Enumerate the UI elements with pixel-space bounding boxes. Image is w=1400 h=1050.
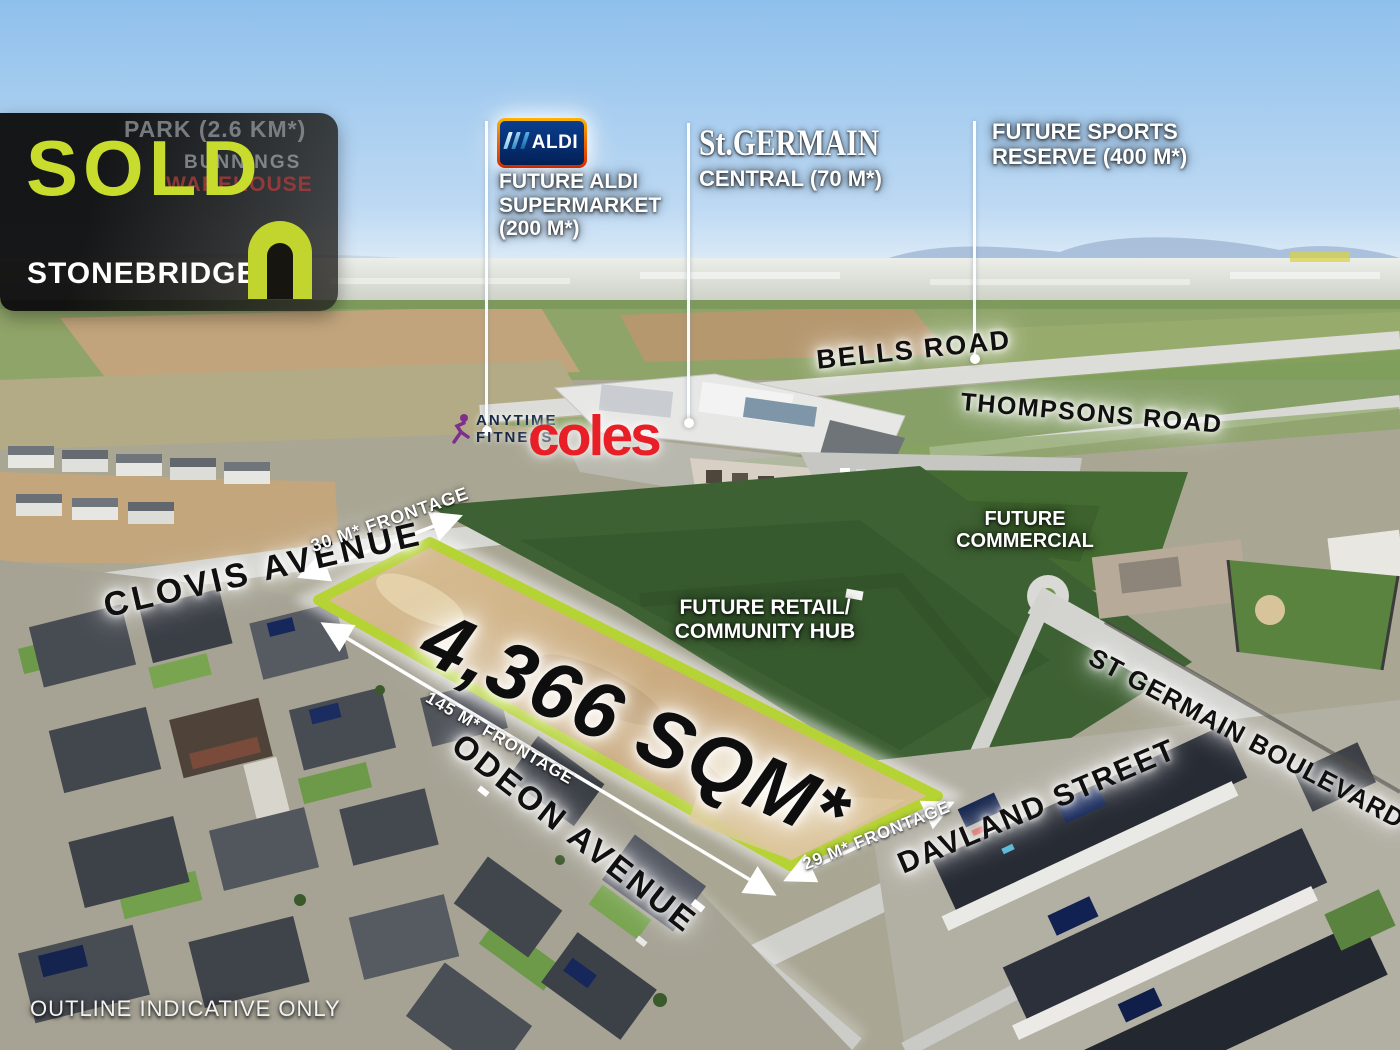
aldi-callout-line2: SUPERMARKET	[499, 194, 661, 218]
st-germain-leader-dot	[684, 418, 694, 428]
sports-reserve-callout: FUTURE SPORTS RESERVE (400 M*)	[992, 120, 1187, 169]
stonebridge-arch-icon	[248, 221, 312, 299]
aldi-logo: ALDI	[497, 118, 587, 168]
aldi-leader-line	[485, 121, 488, 429]
sold-badge: PARK (2.6 KM*) BUNNINGS WAREHOUSE SOLD S…	[0, 113, 338, 311]
future-retail-line2: COMMUNITY HUB	[645, 620, 885, 644]
aldi-callout-line3: (200 M*)	[499, 217, 661, 241]
future-retail-line1: FUTURE RETAIL/	[645, 596, 885, 620]
stonebridge-brand: STONEBRIDGE	[27, 257, 257, 291]
coles-logo: coles	[528, 408, 659, 465]
st-germain-title: St.GERMAIN	[699, 122, 879, 165]
sports-reserve-line2: RESERVE (400 M*)	[992, 145, 1187, 170]
future-commercial-line2: COMMERCIAL	[940, 530, 1110, 552]
aldi-stripes-icon	[506, 132, 527, 154]
future-commercial-label: FUTURE COMMERCIAL	[940, 508, 1110, 553]
future-commercial-line1: FUTURE	[940, 508, 1110, 530]
disclaimer-text: OUTLINE INDICATIVE ONLY	[30, 996, 341, 1022]
aldi-logo-text: ALDI	[532, 132, 578, 154]
future-retail-label: FUTURE RETAIL/ COMMUNITY HUB	[645, 596, 885, 643]
sold-label: SOLD	[26, 129, 263, 207]
anytime-runner-icon	[450, 412, 472, 446]
sports-leader-line	[973, 121, 976, 357]
st-germain-leader-line	[687, 123, 690, 421]
aldi-callout: FUTURE ALDI SUPERMARKET (200 M*)	[499, 170, 661, 241]
marketing-board: ALDI FUTURE ALDI SUPERMARKET (200 M*) St…	[0, 0, 1400, 1050]
sports-reserve-line1: FUTURE SPORTS	[992, 120, 1187, 145]
aldi-callout-line1: FUTURE ALDI	[499, 170, 661, 194]
st-germain-callout: St.GERMAIN CENTRAL (70 M*)	[699, 122, 924, 192]
st-germain-subtitle: CENTRAL (70 M*)	[699, 167, 924, 192]
